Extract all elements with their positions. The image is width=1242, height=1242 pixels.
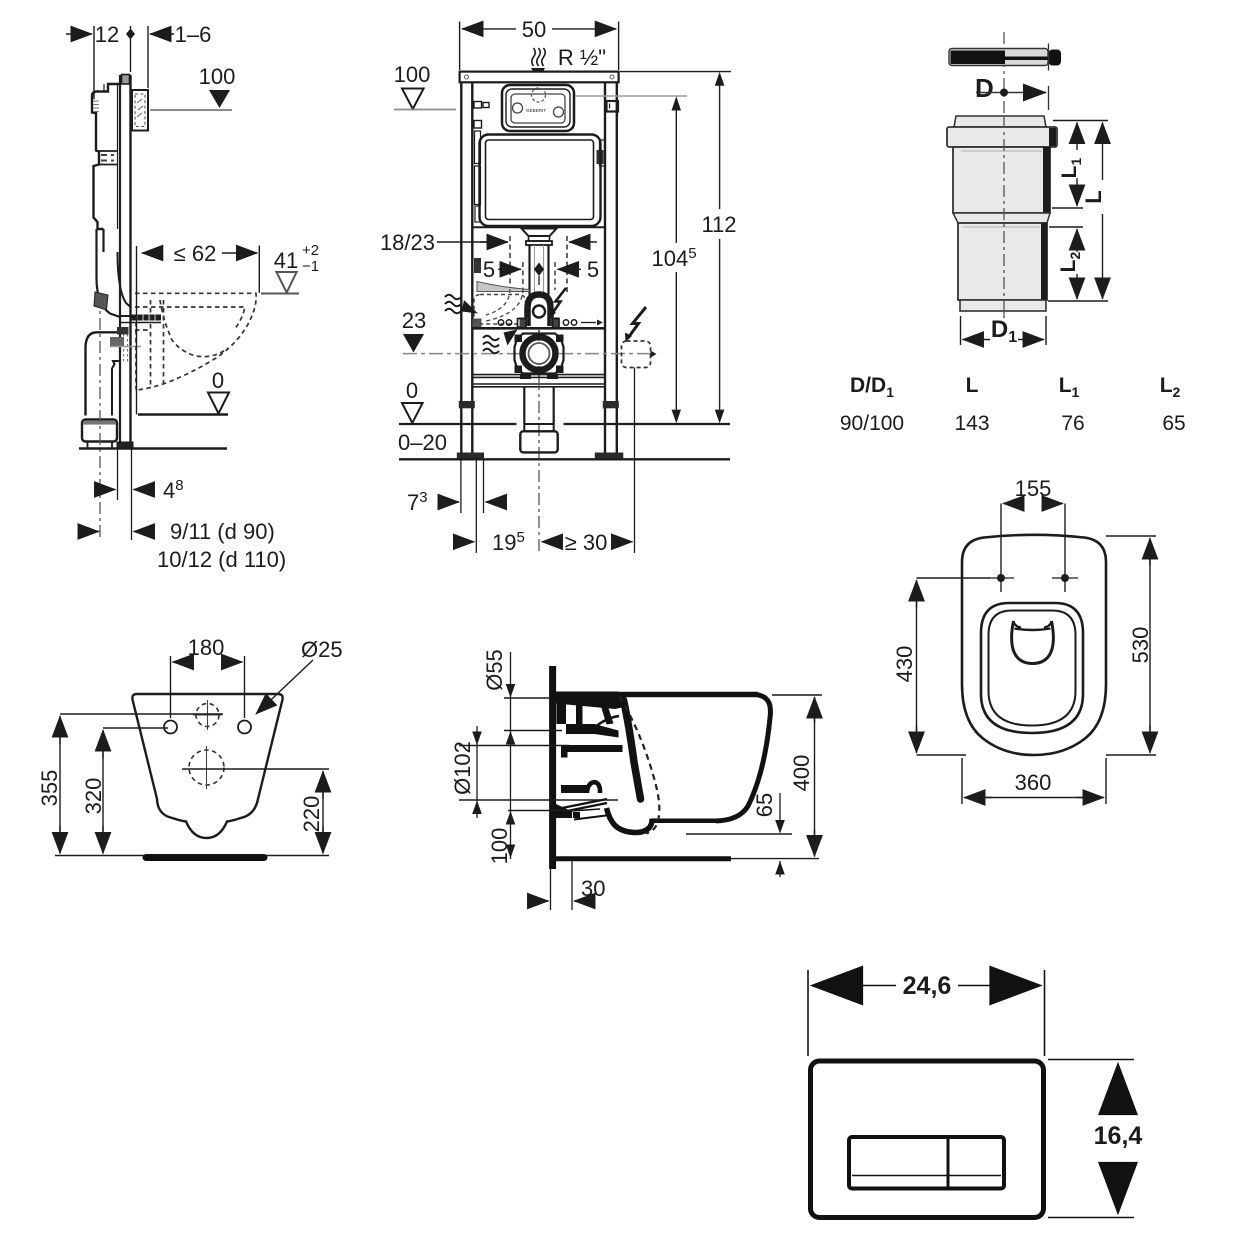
svg-text:L1: L1 [1058, 157, 1084, 178]
svg-text:76: 76 [1061, 412, 1084, 435]
svg-text:1–6: 1–6 [175, 22, 212, 47]
svg-text:0–20: 0–20 [398, 430, 447, 455]
svg-text:D/D1: D/D1 [850, 374, 894, 400]
svg-text:355: 355 [37, 770, 62, 807]
svg-text:L: L [1081, 190, 1106, 203]
svg-text:5: 5 [483, 257, 495, 282]
svg-text:5: 5 [587, 257, 599, 282]
svg-text:−1: −1 [302, 258, 319, 275]
svg-text:50: 50 [522, 17, 546, 42]
svg-text:100: 100 [487, 828, 512, 865]
svg-text:100: 100 [199, 64, 236, 89]
svg-text:1045: 1045 [651, 245, 696, 271]
svg-text:GEBERIT: GEBERIT [526, 108, 546, 113]
svg-text:D1: D1 [991, 316, 1017, 346]
svg-text:16,4: 16,4 [1094, 1122, 1143, 1150]
svg-text:18/23: 18/23 [380, 230, 435, 255]
svg-text:155: 155 [1015, 476, 1052, 501]
svg-text:24,6: 24,6 [903, 972, 952, 1000]
svg-text:Ø102: Ø102 [450, 741, 475, 795]
svg-text:0: 0 [406, 378, 418, 403]
svg-text:112: 112 [701, 212, 736, 237]
svg-text:L2: L2 [1057, 251, 1083, 272]
svg-text:≤ 62: ≤ 62 [174, 241, 217, 266]
svg-text:530: 530 [1128, 627, 1153, 664]
svg-text:180: 180 [188, 635, 225, 660]
svg-text:400: 400 [789, 755, 814, 792]
svg-text:65: 65 [752, 793, 777, 817]
svg-text:73: 73 [407, 489, 428, 515]
svg-text:Ø25: Ø25 [301, 637, 343, 662]
svg-text:L2: L2 [1160, 374, 1181, 400]
svg-text:90/100: 90/100 [840, 412, 904, 435]
svg-text:L: L [966, 374, 979, 397]
svg-text:143: 143 [954, 412, 989, 435]
svg-text:10/12 (d 110): 10/12 (d 110) [157, 547, 286, 572]
svg-text:9/11 (d 90): 9/11 (d 90) [170, 519, 275, 544]
svg-text:Ø55: Ø55 [482, 649, 507, 691]
svg-text:430: 430 [892, 646, 917, 683]
svg-text:L1: L1 [1059, 374, 1080, 400]
svg-text:D: D [975, 73, 994, 103]
svg-text:≥ 30: ≥ 30 [565, 530, 608, 555]
svg-text:100: 100 [394, 62, 431, 87]
svg-text:+2: +2 [302, 242, 319, 259]
svg-text:320: 320 [81, 778, 106, 815]
svg-text:195: 195 [492, 529, 525, 555]
svg-text:360: 360 [1015, 770, 1052, 795]
svg-text:R ½": R ½" [558, 45, 606, 70]
svg-text:48: 48 [163, 477, 184, 503]
svg-text:12: 12 [95, 22, 119, 47]
svg-text:30: 30 [581, 876, 605, 901]
svg-text:23: 23 [402, 308, 426, 333]
svg-text:0: 0 [212, 368, 224, 393]
svg-text:41: 41 [274, 248, 298, 273]
svg-text:220: 220 [299, 796, 324, 833]
svg-text:65: 65 [1162, 412, 1185, 435]
